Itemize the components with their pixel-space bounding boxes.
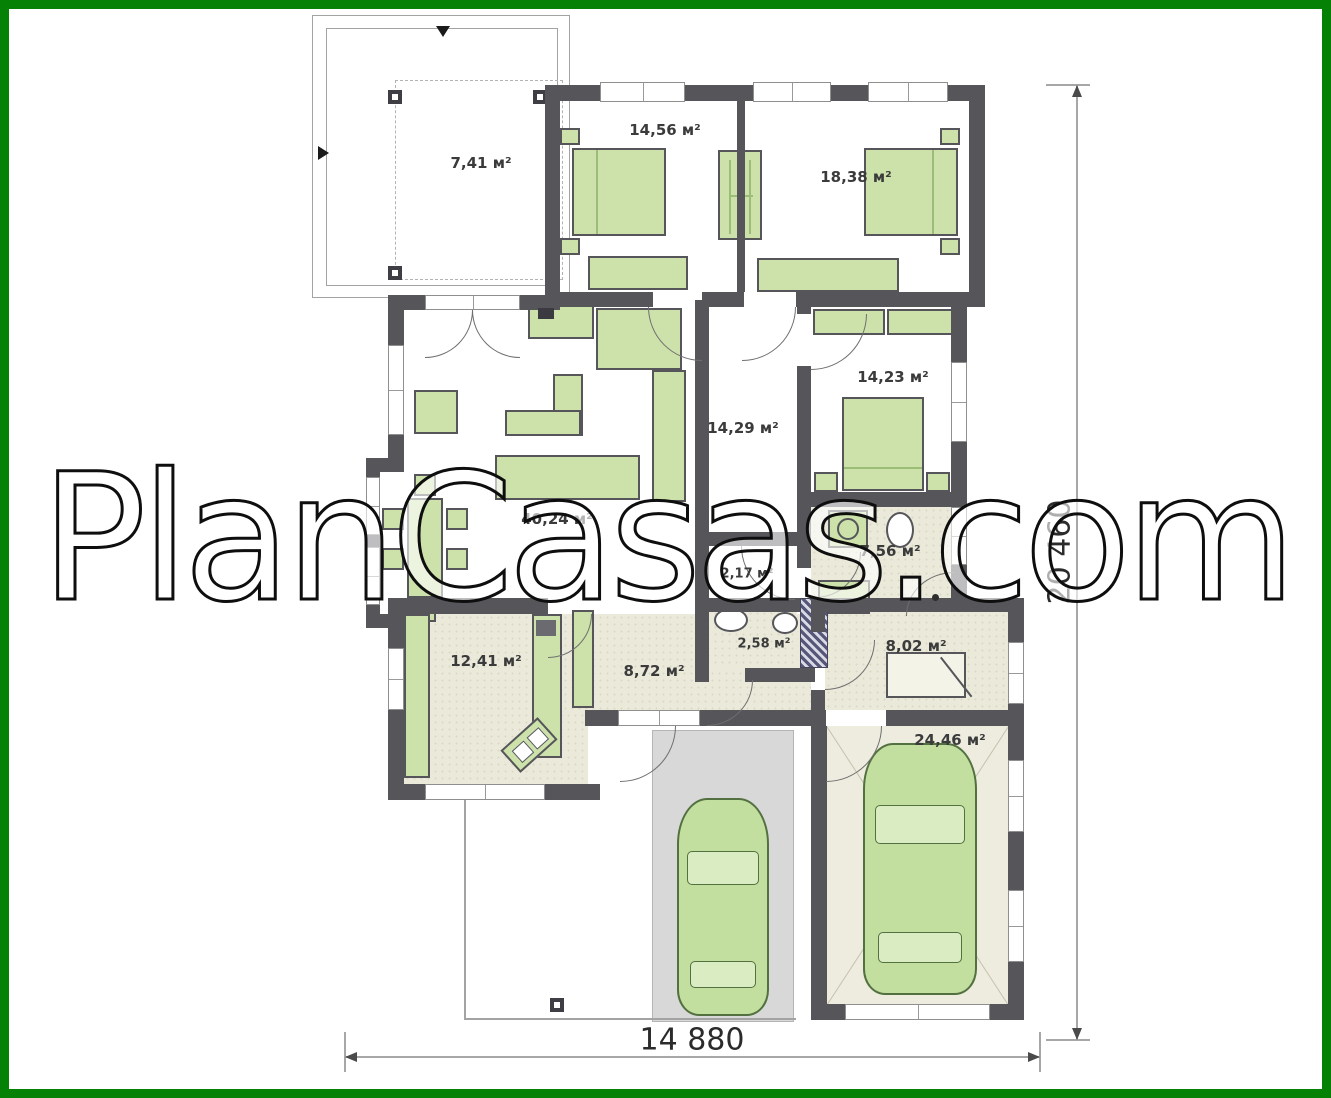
window [1008, 760, 1024, 832]
watermark: PlanCasas.com [40, 436, 1290, 641]
utility-bench [886, 652, 966, 698]
nightstand [940, 238, 960, 255]
wall-segment [796, 292, 985, 307]
door-arc-bedroom-back [811, 314, 867, 370]
canopy-line [464, 1018, 796, 1020]
window [388, 648, 404, 710]
nightstand [940, 128, 960, 145]
room-label-kitchen: 12,41 м² [450, 652, 522, 670]
wall-segment [545, 85, 560, 307]
north-marker-icon [436, 26, 450, 37]
wall-segment [951, 307, 967, 362]
wall-segment [585, 710, 618, 726]
dimension-arrow-icon [1072, 85, 1082, 97]
dimension-arrow-icon [1072, 1028, 1082, 1040]
room-label-bedroom-right: 18,38 м² [820, 168, 892, 186]
wall-segment [811, 726, 827, 1020]
room-label-terrace: 7,41 м² [450, 154, 511, 172]
bed [572, 148, 666, 236]
canopy-line [464, 800, 466, 1020]
door-arc-terrace-right-leaf [472, 310, 520, 358]
room-label-bedroom-left: 14,56 м² [629, 121, 701, 139]
wall-segment [990, 1004, 1024, 1020]
coffee-table [505, 410, 581, 436]
dimension-arrow-icon [1028, 1052, 1040, 1062]
window [1008, 642, 1024, 704]
nightstand [560, 238, 580, 255]
nightstand [560, 128, 580, 145]
floor-plan-page: 7,41 м² 14,56 м² 18,38 м² 14,23 м² 14,29… [0, 0, 1331, 1098]
window [868, 82, 948, 102]
terrace-post [388, 266, 402, 280]
room-label-corridor: 8,72 м² [623, 662, 684, 680]
room-label-bedroom-back: 14,23 м² [857, 368, 929, 386]
window [753, 82, 831, 102]
wall-partition [737, 101, 745, 292]
dimension-width: 14 880 [640, 1023, 745, 1058]
wall-segment [545, 292, 653, 307]
car-garage [863, 743, 977, 995]
door-arc-terrace-left-leaf [425, 310, 473, 358]
dimension-arrow-icon [345, 1052, 357, 1062]
wall-segment [695, 668, 705, 682]
sofa [757, 258, 899, 292]
wall-segment [388, 295, 425, 310]
terrace-french-door [425, 295, 520, 310]
terrace-dashed-outline [395, 80, 563, 280]
wall-segment [797, 300, 811, 314]
garage-vehicle-door [845, 1004, 990, 1020]
armchair [414, 390, 458, 434]
room-label-garage: 24,46 м² [914, 731, 986, 749]
car-driveway [677, 798, 769, 1016]
porch-post [550, 998, 564, 1012]
dimension-tick [1046, 1039, 1090, 1041]
wall-segment [886, 710, 1024, 726]
terrace-post [388, 90, 402, 104]
window [388, 345, 404, 435]
front-door-opening [618, 710, 700, 726]
wall-segment [388, 784, 425, 800]
tv-icon [538, 308, 554, 319]
bed [864, 148, 958, 236]
window [951, 362, 967, 442]
dimension-tick [1046, 84, 1090, 86]
wall-segment [969, 85, 985, 307]
window [600, 82, 685, 102]
wall-segment [1008, 832, 1024, 890]
wall-segment [745, 668, 815, 682]
window [1008, 890, 1024, 962]
dresser [588, 256, 688, 290]
wall-segment [811, 1004, 845, 1020]
window [425, 784, 545, 800]
wall-segment [545, 784, 600, 800]
room-label-hall: 14,29 м² [707, 419, 779, 437]
side-marker-icon [318, 146, 329, 160]
wall-segment [811, 690, 825, 710]
door-arc-bedroom-right [742, 307, 796, 361]
